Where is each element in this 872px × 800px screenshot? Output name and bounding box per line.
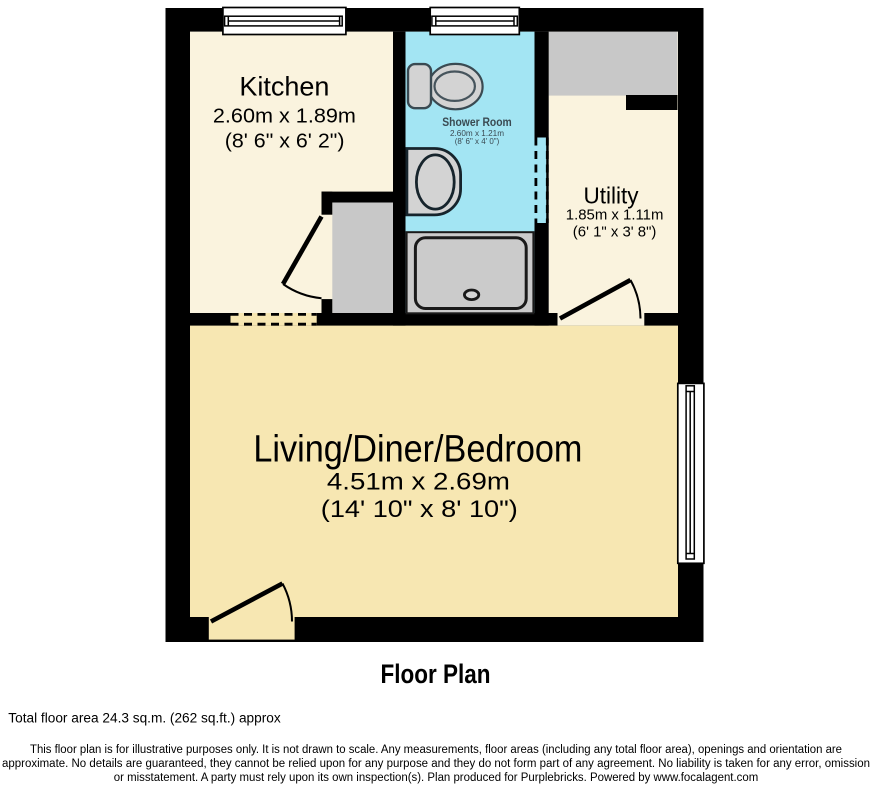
svg-text:(8' 6" x 4' 0"): (8' 6" x 4' 0") xyxy=(455,137,500,146)
svg-text:2.60m x 1.89m: 2.60m x 1.89m xyxy=(213,105,356,127)
svg-text:(14' 10" x 8' 10"): (14' 10" x 8' 10") xyxy=(321,496,518,523)
svg-text:Shower Room: Shower Room xyxy=(442,115,512,129)
svg-text:or misstatement. A party must: or misstatement. A party must rely upon … xyxy=(114,772,759,784)
svg-text:Living/Diner/Bedroom: Living/Diner/Bedroom xyxy=(253,429,582,471)
svg-text:Floor Plan: Floor Plan xyxy=(381,659,491,689)
svg-text:Utility: Utility xyxy=(584,182,639,208)
svg-text:1.85m x 1.11m: 1.85m x 1.11m xyxy=(566,208,664,224)
svg-text:Total floor area 24.3 sq.m. (2: Total floor area 24.3 sq.m. (262 sq.ft.)… xyxy=(8,710,280,726)
svg-text:Kitchen: Kitchen xyxy=(239,71,329,101)
svg-text:approximate. No details are gu: approximate. No details are guaranteed, … xyxy=(2,758,870,770)
svg-text:4.51m x 2.69m: 4.51m x 2.69m xyxy=(327,469,510,496)
svg-text:(8' 6" x 6' 2"): (8' 6" x 6' 2") xyxy=(225,131,345,153)
svg-text:(6' 1" x 3' 8"): (6' 1" x 3' 8") xyxy=(573,225,657,241)
svg-text:This floor plan is for illustr: This floor plan is for illustrative purp… xyxy=(30,744,842,756)
